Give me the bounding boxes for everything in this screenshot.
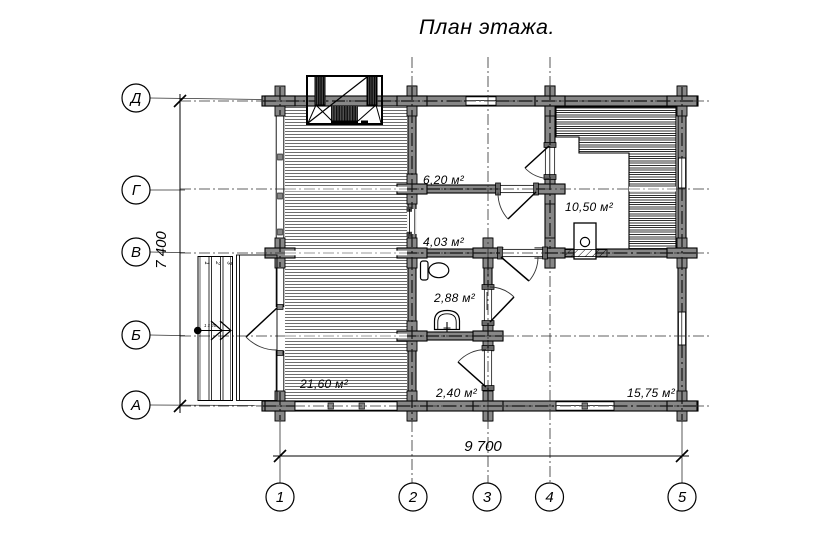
svg-text:10,50 м²: 10,50 м² <box>565 200 614 214</box>
svg-text:Д: Д <box>129 90 142 107</box>
svg-text:9 700: 9 700 <box>464 438 502 455</box>
svg-text:4: 4 <box>545 489 553 506</box>
svg-text:3: 3 <box>483 489 492 506</box>
svg-text:4,03 м²: 4,03 м² <box>423 235 465 249</box>
svg-text:7 400: 7 400 <box>153 231 170 269</box>
svg-text:2,88 м²: 2,88 м² <box>433 291 476 305</box>
svg-text:1 x 20: 1 x 20 <box>204 323 217 328</box>
svg-text:5: 5 <box>678 489 687 506</box>
svg-text:План этажа.: План этажа. <box>419 15 555 39</box>
svg-text:2: 2 <box>408 489 418 506</box>
svg-text:2,40 м²: 2,40 м² <box>435 386 478 400</box>
svg-text:А: А <box>130 397 141 414</box>
svg-text:15,75 м²: 15,75 м² <box>627 386 676 400</box>
svg-text:2: 2 <box>214 260 220 265</box>
svg-text:21,60 м²: 21,60 м² <box>299 377 349 391</box>
svg-text:1: 1 <box>203 261 209 264</box>
svg-text:1: 1 <box>276 489 284 506</box>
svg-text:Б: Б <box>131 327 141 344</box>
svg-text:В: В <box>131 244 141 261</box>
svg-text:6,20 м²: 6,20 м² <box>423 173 465 187</box>
